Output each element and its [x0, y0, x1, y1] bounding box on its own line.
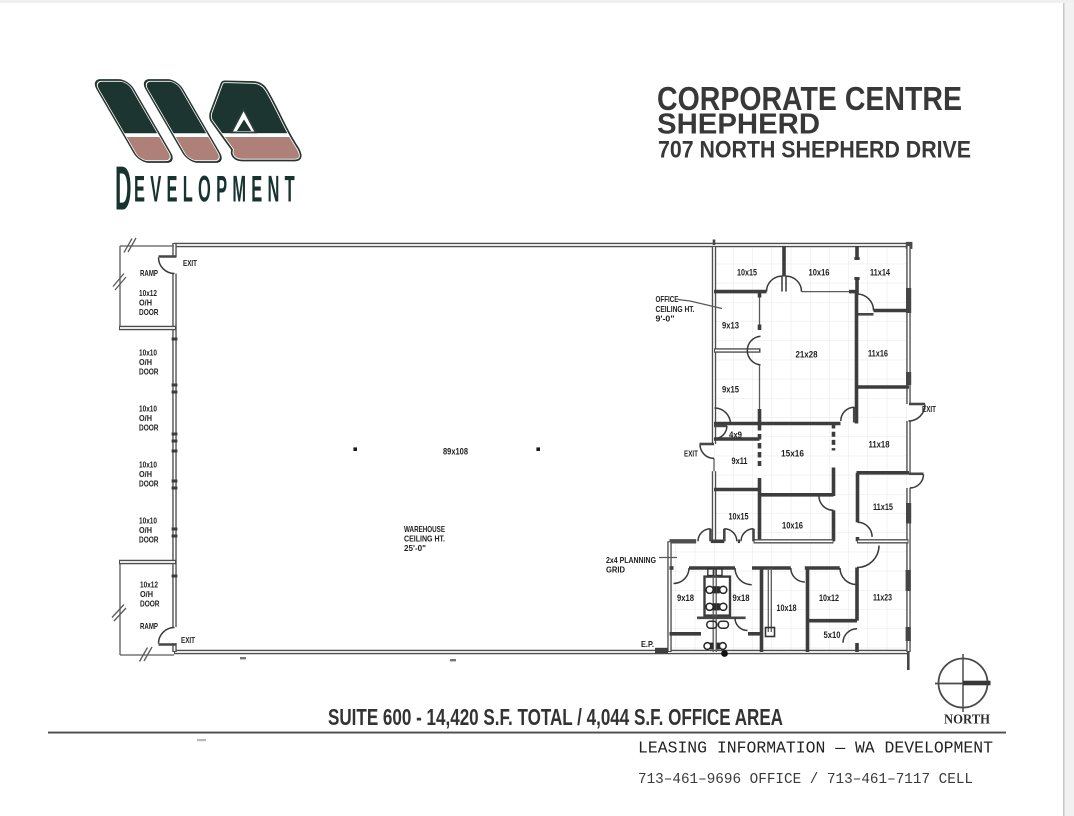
svg-text:O/H: O/H — [139, 525, 152, 535]
svg-text:DOOR: DOOR — [140, 599, 160, 609]
svg-text:9x15: 9x15 — [722, 385, 739, 395]
svg-text:CEILING HT.: CEILING HT. — [656, 304, 695, 314]
svg-text:11x15: 11x15 — [873, 502, 893, 512]
svg-text:10x10: 10x10 — [139, 404, 157, 414]
svg-text:10x18: 10x18 — [777, 603, 797, 613]
svg-text:9x18: 9x18 — [677, 593, 694, 603]
svg-text:EXIT: EXIT — [183, 258, 198, 268]
svg-text:10x10: 10x10 — [139, 516, 157, 526]
svg-text:RAMP: RAMP — [140, 268, 158, 278]
svg-text:RAMP: RAMP — [140, 621, 158, 631]
svg-text:10x16: 10x16 — [809, 268, 830, 278]
svg-text:LEASING INFORMATION — WA DEVEL: LEASING INFORMATION — WA DEVELOPMENT — [638, 739, 993, 758]
svg-text:WAREHOUSE: WAREHOUSE — [404, 524, 445, 534]
svg-text:10x10: 10x10 — [139, 348, 157, 358]
svg-text:4x9: 4x9 — [729, 430, 742, 440]
svg-text:NORTH: NORTH — [944, 712, 990, 727]
svg-text:O/H: O/H — [139, 357, 152, 367]
svg-text:11x23: 11x23 — [873, 593, 892, 603]
svg-text:DOOR: DOOR — [139, 307, 159, 317]
svg-text:2x4 PLANNING: 2x4 PLANNING — [606, 555, 656, 565]
svg-text:10x15: 10x15 — [737, 268, 757, 278]
svg-text:O/H: O/H — [139, 413, 152, 423]
svg-text:11x18: 11x18 — [869, 440, 890, 450]
svg-text:O/H: O/H — [140, 589, 153, 599]
svg-text:10x15: 10x15 — [729, 512, 749, 522]
svg-text:10x16: 10x16 — [782, 521, 803, 531]
svg-text:10x12: 10x12 — [139, 288, 157, 298]
svg-text:15x16: 15x16 — [781, 449, 804, 459]
svg-text:9x13: 9x13 — [722, 321, 739, 331]
svg-text:DOOR: DOOR — [139, 535, 159, 545]
svg-text:11x16: 11x16 — [868, 349, 888, 359]
svg-text:EXIT: EXIT — [684, 449, 699, 459]
svg-text:O/H: O/H — [139, 298, 152, 308]
svg-text:EVELOPMENT: EVELOPMENT — [134, 168, 300, 210]
svg-text:11x14: 11x14 — [870, 268, 891, 278]
svg-text:E.P.: E.P. — [641, 639, 654, 649]
svg-text:CEILING HT.: CEILING HT. — [404, 534, 445, 544]
svg-text:5x10: 5x10 — [824, 630, 841, 640]
svg-text:10x12: 10x12 — [140, 580, 158, 590]
svg-text:9x18: 9x18 — [733, 593, 750, 603]
svg-text:O/H: O/H — [139, 469, 152, 479]
svg-text:10x10: 10x10 — [139, 460, 157, 470]
svg-text:DOOR: DOOR — [139, 423, 159, 433]
svg-text:OFFICE: OFFICE — [656, 294, 679, 304]
svg-text:DOOR: DOOR — [139, 367, 159, 377]
svg-text:21x28: 21x28 — [796, 350, 818, 360]
svg-text:EXIT: EXIT — [181, 635, 196, 645]
svg-text:GRID: GRID — [606, 565, 625, 575]
svg-text:DOOR: DOOR — [139, 479, 159, 489]
svg-text:EXIT: EXIT — [922, 404, 937, 414]
svg-text:89x108: 89x108 — [443, 447, 468, 457]
svg-text:9'-0": 9'-0" — [656, 314, 675, 324]
svg-text:9x11: 9x11 — [732, 456, 748, 466]
svg-text:D: D — [115, 155, 132, 224]
svg-text:707 NORTH SHEPHERD DRIVE: 707 NORTH SHEPHERD DRIVE — [658, 136, 971, 163]
svg-text:10x12: 10x12 — [819, 593, 839, 603]
svg-text:25'-0": 25'-0" — [404, 543, 426, 553]
svg-text:SUITE 600 - 14,420 S.F. TOTA: SUITE 600 - 14,420 S.F. TOTAL / 4,044 S.… — [328, 704, 783, 730]
svg-text:713–461–9696 OFFICE / 713–461–: 713–461–9696 OFFICE / 713–461–7117 CELL — [638, 771, 973, 788]
